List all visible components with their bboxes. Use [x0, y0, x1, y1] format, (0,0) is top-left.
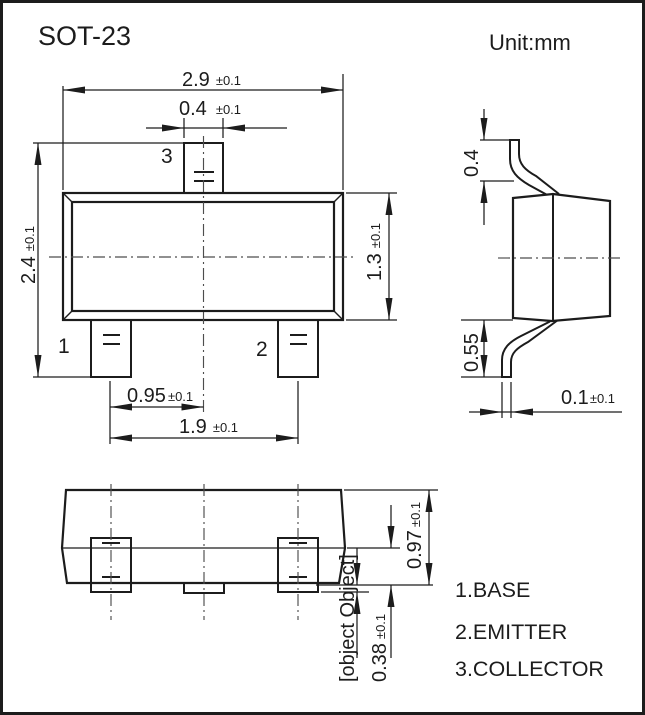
bottom-view: 0.97±0.1 0.38±0.1 [object Object]: [62, 484, 438, 682]
legend-item-collector: 3.COLLECTOR: [455, 657, 604, 681]
dim-body-height: 1.3±0.1: [364, 223, 386, 281]
dim-lead-thickness: 0.1±0.1: [561, 387, 615, 409]
sot23-package-drawing: 2.9±0.1 0.4±0.1 2.4±0.1 1.3±0.1 0.95±0.1…: [3, 3, 642, 712]
front-pin-1: [91, 319, 131, 377]
dim-overall-height: 2.4±0.1: [18, 226, 40, 284]
dim-pin3-width: 0.4±0.1: [179, 98, 241, 120]
pin-1-label: 1: [58, 335, 70, 358]
legend-item-emitter: 2.EMITTER: [455, 620, 567, 644]
side-top-lead: [509, 140, 559, 197]
pin-legend: 1.BASE 2.EMITTER 3.COLLECTOR: [455, 578, 604, 681]
dim-standoff: [object Object]: [337, 554, 359, 682]
side-bottom-lead: [501, 319, 560, 378]
front-view: 2.9±0.1 0.4±0.1 2.4±0.1 1.3±0.1 0.95±0.1…: [18, 69, 397, 444]
pin-2-label: 2: [256, 338, 268, 361]
unit-label: Unit:mm: [489, 30, 571, 55]
dim-bottom-lead-height: 0.55: [461, 333, 483, 372]
dim-body-thickness: 0.97±0.1: [404, 502, 426, 569]
dim-body-width: 2.9±0.1: [182, 69, 241, 91]
front-pin-2: [278, 319, 318, 377]
dim-pin-span: 1.9±0.1: [179, 416, 238, 438]
page-title: SOT-23: [38, 21, 131, 51]
side-view: 0.4 0.55 0.1±0.1: [461, 109, 624, 418]
pin-3-label: 3: [161, 145, 173, 168]
dim-top-lead-height: 0.4: [461, 149, 483, 177]
legend-item-base: 1.BASE: [455, 578, 530, 602]
drawing-frame: 2.9±0.1 0.4±0.1 2.4±0.1 1.3±0.1 0.95±0.1…: [0, 0, 645, 715]
dim-pin-pitch: 0.95±0.1: [127, 385, 193, 407]
dim-foot-height: 0.38±0.1: [369, 614, 391, 682]
